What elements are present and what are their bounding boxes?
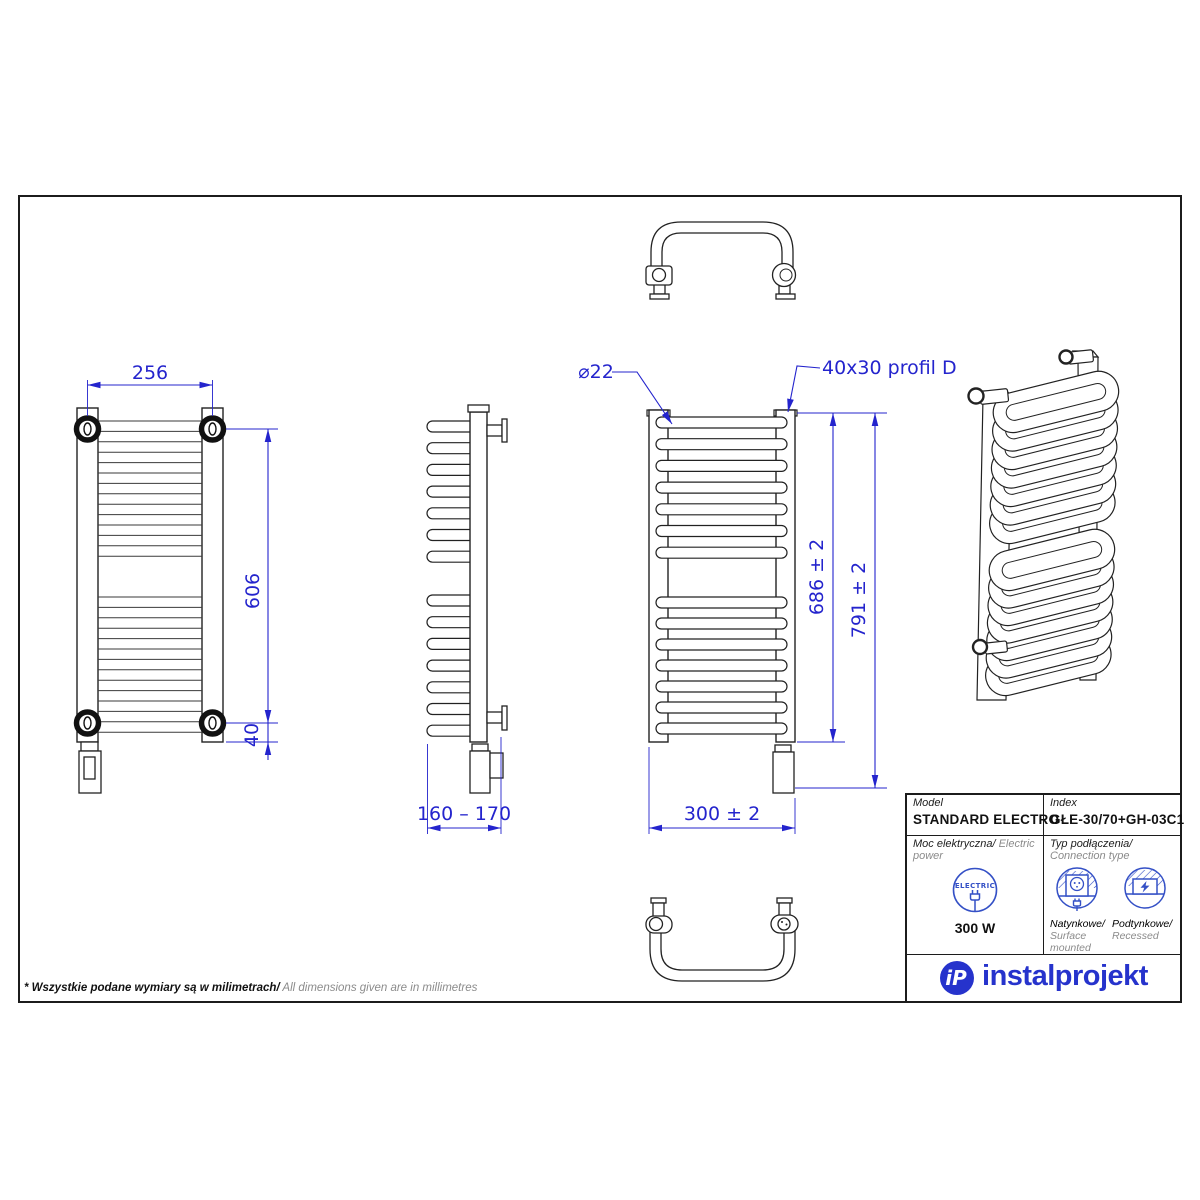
persp-bracket-bottom-left [973,640,1008,654]
technical-drawing: 256 606 40 160 – 170 300 ± 2 686 ± 2 791… [0,0,1200,1200]
mid-rung [656,702,787,713]
wall-bracket-top [487,419,507,442]
bottom-view-cap [777,898,792,903]
top-view [646,222,796,299]
mid-rung [656,504,787,515]
side-rail-cap [468,405,489,412]
model-label: Model [913,797,1037,809]
title-block-row-model: Model STANDARD ELECTRO Index GŁE-30/70+G… [907,795,1180,836]
connection-label-en: Connection type [1050,850,1130,862]
heater-element [79,742,101,793]
label-profile: 40x30 profil D [822,357,957,379]
mid-rung [656,618,787,629]
brand-monogram-icon: iP [939,960,975,996]
mount-bracket [77,418,99,440]
front-rung-lines [98,421,202,732]
mid-rung [656,660,787,671]
top-view-collar-hole [653,269,666,282]
electric-icon-wrap: ELECTRIC [913,866,1037,922]
wall-bracket-bottom [487,706,507,730]
title-block-row-specs: Moc elektryczna/ Electric power ELECTRIC… [907,836,1180,955]
bottom-view-socket [778,918,790,930]
persp-bracket-top-left [969,389,1009,405]
heater-element-side [470,744,503,793]
bottom-view [646,898,798,981]
top-view-foot-base [776,294,795,299]
mid-rung [656,681,787,692]
top-view-foot-base [650,294,669,299]
mid-rung [656,597,787,608]
mid-rung [656,526,787,537]
bottom-view-tube [650,926,795,981]
mid-rung [656,439,787,450]
dim-front-width: 256 [132,362,168,384]
surface-label-en: Surface mounted [1050,930,1091,954]
dim-mid-height-total: 791 ± 2 [848,562,870,638]
bottom-view-collar-hole [650,918,663,931]
bottom-view-cap [651,898,666,903]
dim-front-bottom-offset: 40 [241,723,263,747]
dim-mid-height-inner: 686 ± 2 [806,539,828,615]
footnote-pl: * Wszystkie podane wymiary są w milimetr… [24,982,280,994]
footnote-en: All dimensions given are in millimetres [280,982,478,994]
surface-mounted-icon [1052,866,1102,916]
model-cell: Model STANDARD ELECTRO [907,795,1044,835]
brand-monogram: iP [945,966,967,990]
mount-bracket [202,712,224,734]
title-block: Model STANDARD ELECTRO Index GŁE-30/70+G… [905,793,1182,1003]
bottom-view-socket-dot [786,924,788,926]
brand-name: instalprojekt [982,962,1148,995]
index-value: GŁE-30/70+GH-03C1 [1050,812,1184,827]
connection-label-pl: Typ podłączenia/ [1050,838,1132,850]
mount-bracket [202,418,224,440]
front-rail-right [202,408,223,742]
mid-front-view [647,410,797,793]
label-tube-diameter: ⌀22 [578,361,614,383]
dimensions-footnote: * Wszystkie podane wymiary są w milimetr… [24,982,477,994]
dim-side-depth: 160 – 170 [417,803,511,825]
mid-rung [656,723,787,734]
heater-element-mid [773,745,794,793]
bottom-view-socket-dot [781,921,783,923]
persp-bracket-top-right [1060,350,1094,365]
mid-rung [656,639,787,650]
electric-plug-icon: ELECTRIC [949,866,1001,922]
mid-rung [656,417,787,428]
recessed-label-pl: Podtynkowe/ [1112,918,1172,930]
perspective-view [969,350,1123,700]
index-cell: Index GŁE-30/70+GH-03C1 [1044,795,1190,835]
index-label: Index [1050,797,1184,809]
mid-rung [656,547,787,558]
front-rail-left [77,408,98,742]
power-cell: Moc elektryczna/ Electric power ELECTRIC… [907,836,1044,954]
recessed-label-en: Recessed [1112,930,1159,942]
mid-rung [656,482,787,493]
mid-rung [656,460,787,471]
electric-icon-text: ELECTRIC [955,882,995,890]
connection-cell: Typ podłączenia/Connection type [1044,836,1180,954]
side-view [427,405,507,793]
mid-rungs [656,417,787,734]
side-rail [470,412,487,742]
model-value: STANDARD ELECTRO [913,812,1037,827]
surface-label-pl: Natynkowe/ [1050,918,1105,930]
power-label-pl: Moc elektryczna/ [913,838,996,850]
dim-front-height: 606 [242,573,264,609]
top-view-valve-inner [780,269,792,281]
recessed-icon [1120,866,1170,916]
dim-mid-width: 300 ± 2 [684,803,760,825]
brand-logo: iP instalprojekt [907,955,1180,1001]
power-value: 300 W [913,920,1037,936]
mount-bracket [77,712,99,734]
front-view [77,408,224,793]
radiator-spec-sheet: { "sheet": { "note_pl": "* Wszystkie pod… [0,0,1200,1200]
